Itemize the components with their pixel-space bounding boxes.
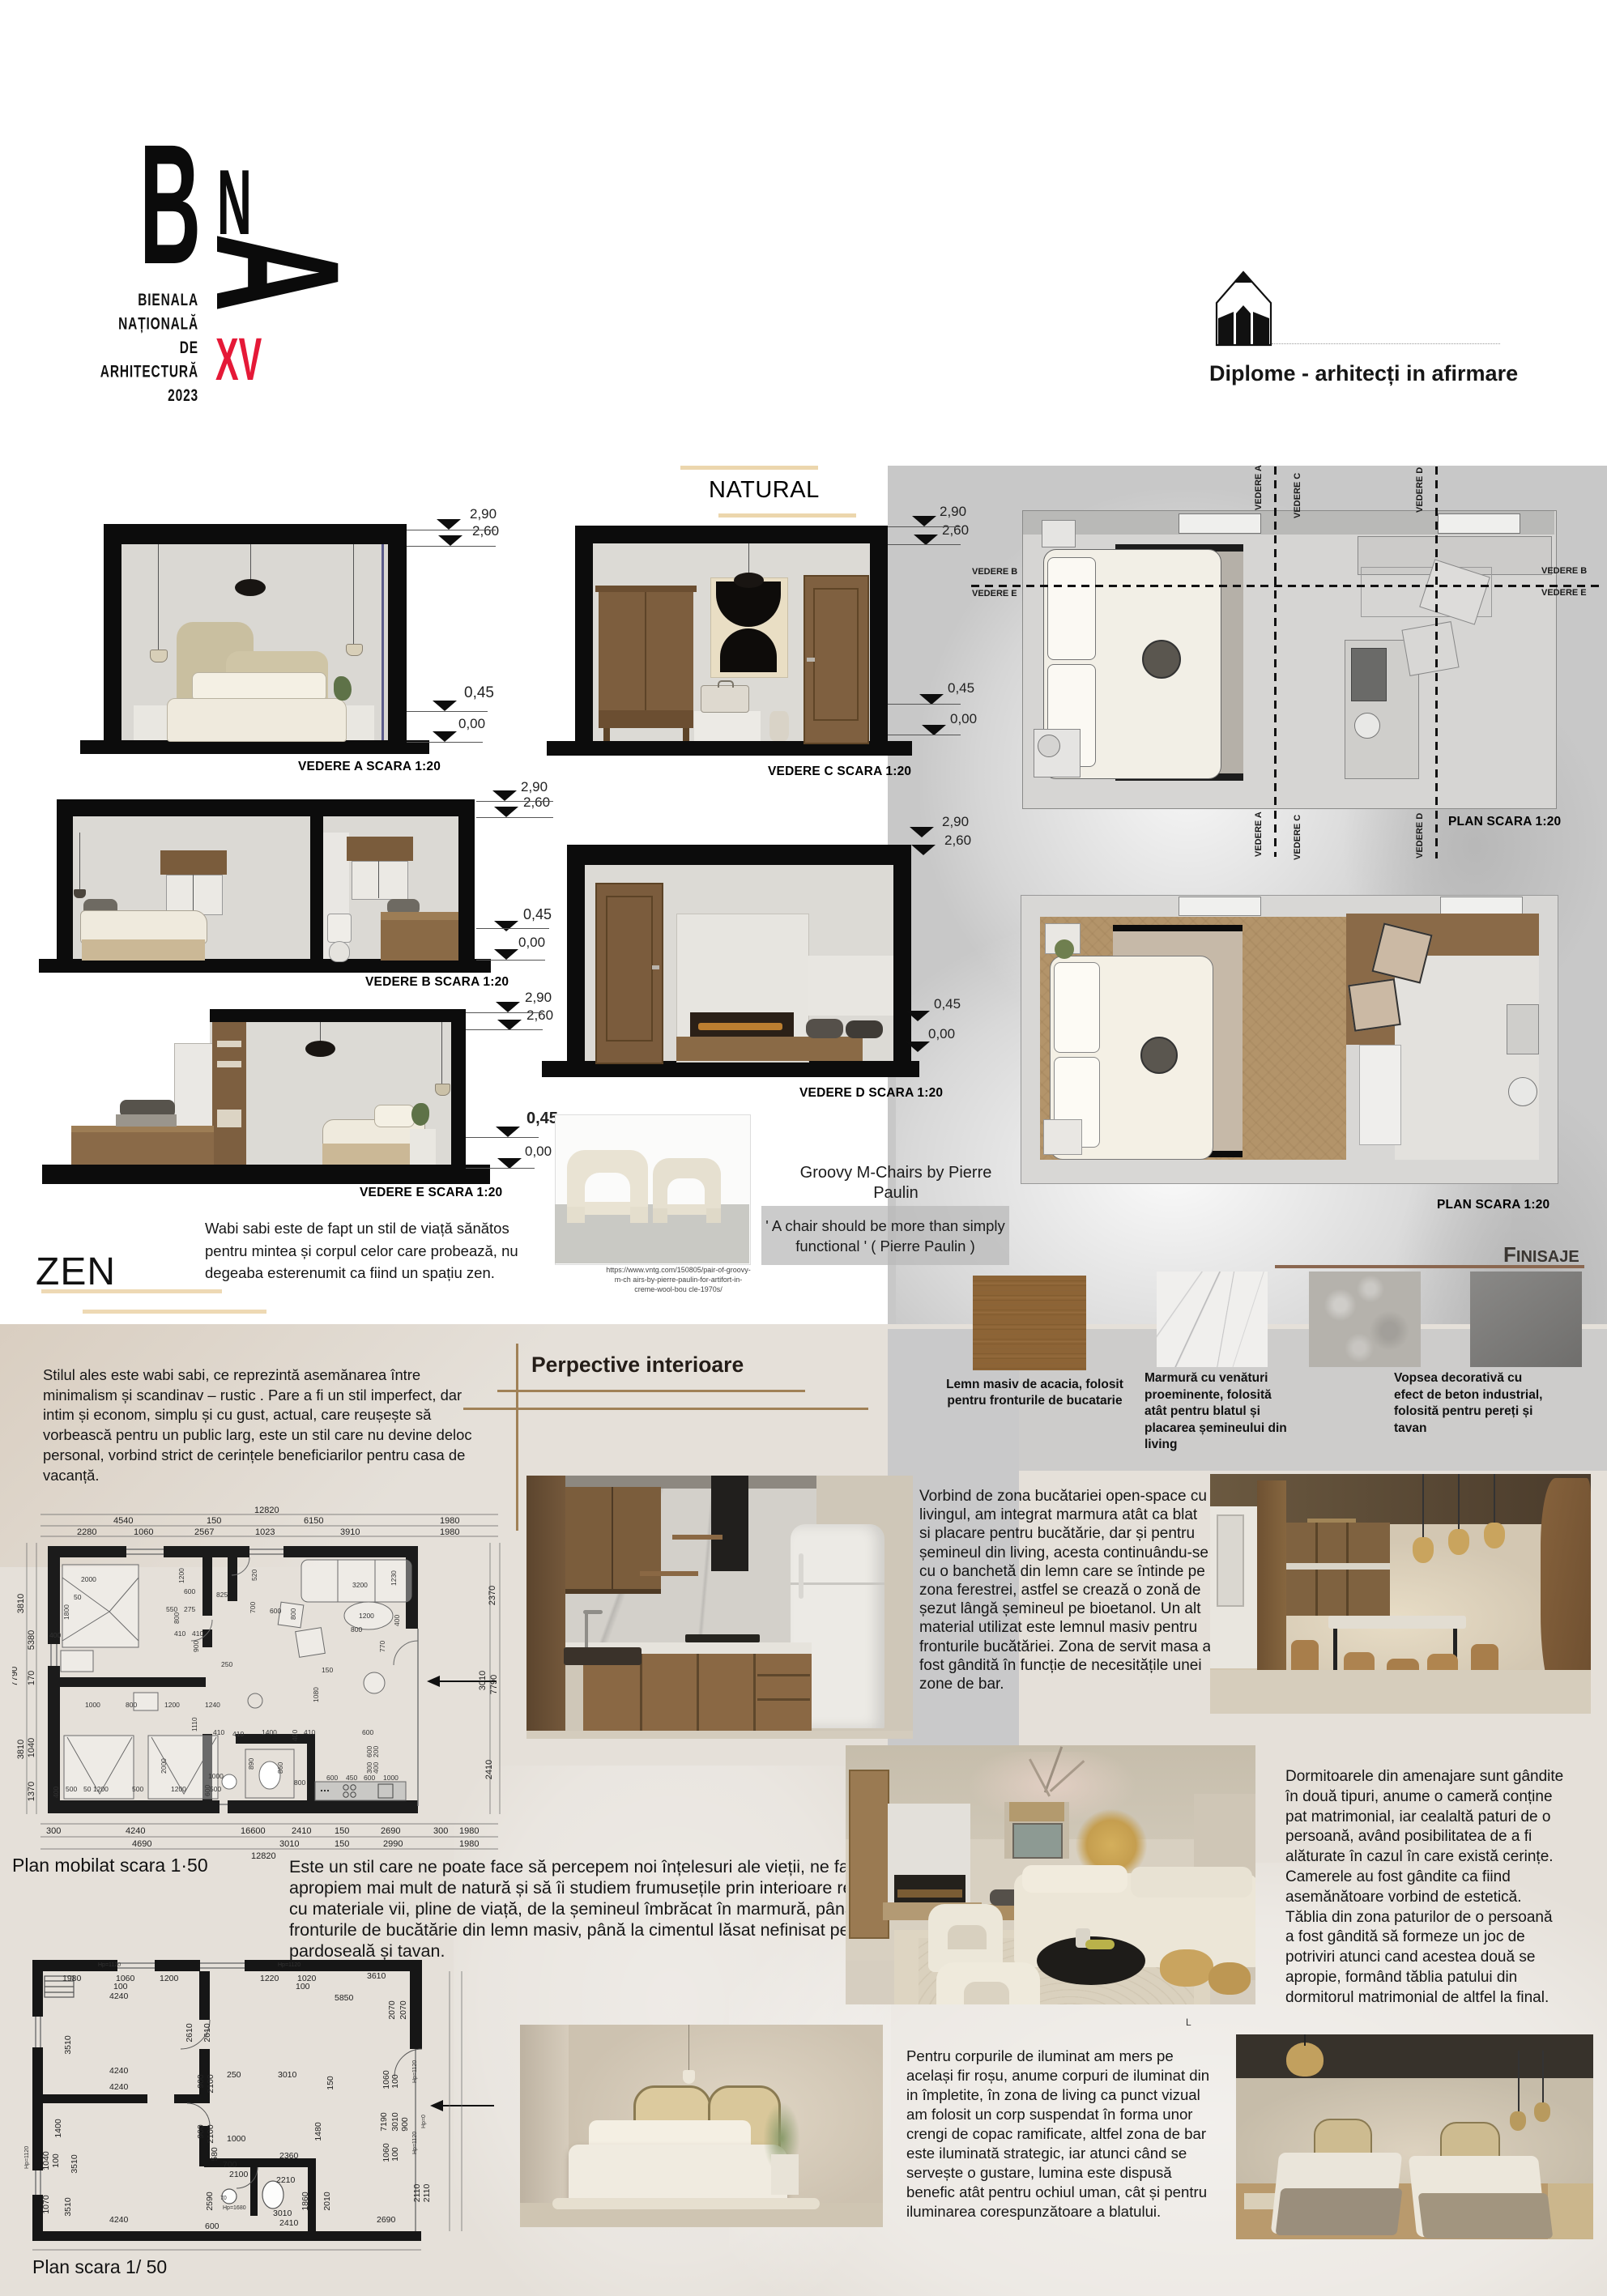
svg-text:3510: 3510 [63,2197,73,2217]
svg-text:2690: 2690 [381,1826,400,1836]
svg-text:600: 600 [326,1774,338,1782]
svg-text:1040: 1040 [41,2151,51,2170]
svg-text:1400: 1400 [53,2119,63,2138]
svg-text:12820: 12820 [254,1506,279,1515]
svg-text:2410: 2410 [279,2218,299,2228]
svg-text:2110: 2110 [412,2184,422,2203]
svg-text:1200: 1200 [160,1974,179,1983]
svg-text:1240: 1240 [205,1701,220,1709]
svg-text:XV: XV [215,326,262,393]
svg-text:2110: 2110 [422,2184,432,2203]
svg-text:5850: 5850 [335,1993,354,2003]
svg-text:2370: 2370 [488,1586,497,1605]
svg-text:1800: 1800 [62,1604,70,1620]
svg-text:800: 800 [294,1778,305,1787]
svg-text:NAȚIONALĂ: NAȚIONALĂ [118,313,198,333]
svg-text:2567: 2567 [194,1527,214,1537]
svg-text:1200: 1200 [171,1785,186,1793]
svg-text:410: 410 [174,1629,185,1638]
svg-text:2070: 2070 [399,2000,408,2020]
svg-text:2000: 2000 [160,1758,168,1774]
svg-text:410: 410 [304,1728,315,1736]
svg-text:600: 600 [184,1587,195,1595]
svg-text:3810: 3810 [16,1740,26,1759]
svg-text:250: 250 [221,1660,232,1668]
svg-text:2990: 2990 [383,1839,403,1849]
svg-text:250: 250 [227,2070,241,2080]
svg-text:550: 550 [166,1605,177,1613]
svg-text:4240: 4240 [109,1991,129,2001]
svg-text:Hp=1120: Hp=1120 [278,1962,301,1968]
svg-text:770: 770 [378,1641,386,1652]
svg-text:400: 400 [291,1730,299,1741]
svg-text:520: 520 [250,1570,258,1581]
svg-text:2590: 2590 [205,2192,215,2211]
svg-text:16600: 16600 [241,1826,266,1836]
svg-text:100: 100 [51,2153,61,2168]
svg-text:400: 400 [52,1787,60,1798]
svg-text:2690: 2690 [377,2215,396,2225]
svg-text:580: 580 [210,2147,220,2162]
svg-text:2100: 2100 [206,2124,215,2144]
svg-text:900: 900 [400,2117,410,2132]
svg-text:890: 890 [247,1758,255,1770]
svg-text:50: 50 [83,1785,92,1793]
svg-text:800: 800 [351,1625,362,1634]
svg-text:500: 500 [66,1785,77,1793]
svg-text:4540: 4540 [113,1516,133,1526]
svg-text:1110: 1110 [190,1717,198,1732]
svg-text:1480: 1480 [313,2122,323,2141]
svg-text:410: 410 [213,1728,224,1736]
svg-text:1060: 1060 [134,1527,153,1537]
svg-text:450: 450 [346,1774,357,1782]
svg-text:600: 600 [364,1774,375,1782]
svg-text:7190: 7190 [379,2112,389,2132]
svg-text:1980: 1980 [62,1974,82,1983]
svg-text:3200: 3200 [352,1581,368,1589]
svg-text:800: 800 [289,1608,297,1620]
svg-text:1980: 1980 [440,1527,459,1537]
svg-text:3810: 3810 [16,1594,26,1613]
svg-text:410: 410 [192,1629,203,1638]
svg-text:150: 150 [326,2076,335,2090]
svg-text:3510: 3510 [70,2154,79,2174]
svg-text:700: 700 [223,2160,237,2170]
svg-text:3510: 3510 [63,2035,73,2055]
svg-text:860: 860 [276,1762,284,1774]
svg-text:7790: 7790 [489,1675,499,1694]
svg-text:1980: 1980 [459,1839,479,1849]
svg-text:410: 410 [232,1730,244,1738]
svg-text:150: 150 [207,1516,221,1526]
svg-text:70: 70 [220,2196,227,2201]
svg-text:4240: 4240 [109,2066,129,2076]
svg-text:2070: 2070 [387,2000,397,2020]
svg-text:1980: 1980 [459,1826,479,1836]
svg-text:1070: 1070 [41,2195,51,2214]
svg-text:1000: 1000 [383,1774,399,1782]
svg-text:Hp=1120: Hp=1120 [412,2060,418,2083]
svg-text:200: 200 [372,1746,380,1757]
svg-text:1220: 1220 [260,1974,279,1983]
svg-text:400: 400 [49,1631,61,1639]
svg-text:2410: 2410 [484,1760,494,1779]
svg-text:150: 150 [322,1666,333,1674]
svg-text:2410: 2410 [292,1826,311,1836]
svg-text:2010: 2010 [322,2192,332,2211]
svg-text:600: 600 [270,1607,281,1615]
svg-text:150: 150 [335,1826,349,1836]
svg-text:1200: 1200 [164,1701,180,1709]
svg-text:500: 500 [210,1785,221,1793]
svg-text:2610: 2610 [202,2023,212,2043]
svg-text:4240: 4240 [109,2082,129,2092]
svg-text:1200: 1200 [93,1785,109,1793]
svg-text:DE: DE [180,337,198,356]
svg-text:12820: 12820 [251,1851,276,1861]
svg-text:1200: 1200 [177,1568,185,1583]
svg-text:1370: 1370 [27,1782,36,1801]
svg-text:Hp=1120: Hp=1120 [98,1962,121,1968]
svg-text:2100: 2100 [229,2170,249,2179]
svg-text:1230: 1230 [390,1570,398,1586]
svg-text:3010: 3010 [279,1839,299,1849]
svg-text:900: 900 [192,1641,200,1652]
svg-text:A: A [179,233,375,312]
svg-text:1000: 1000 [227,2134,246,2144]
svg-text:7790: 7790 [12,1667,19,1686]
svg-text:3010: 3010 [478,1671,488,1690]
svg-text:1400: 1400 [262,1728,277,1736]
svg-text:Hp=1680: Hp=1680 [223,2205,246,2211]
svg-text:Hp=1120: Hp=1120 [24,2146,30,2169]
svg-text:4240: 4240 [109,2215,129,2225]
svg-text:1040: 1040 [27,1738,36,1757]
svg-text:1080: 1080 [312,1687,320,1702]
svg-text:4240: 4240 [126,1826,145,1836]
svg-text:3610: 3610 [367,1971,386,1981]
svg-text:700: 700 [249,1602,257,1613]
svg-text:400: 400 [372,1762,380,1774]
svg-text:5380: 5380 [27,1630,36,1650]
svg-text:600: 600 [362,1728,373,1736]
svg-text:800: 800 [173,1612,181,1624]
svg-text:800: 800 [126,1701,137,1709]
svg-text:300: 300 [433,1826,448,1836]
svg-text:2023: 2023 [168,385,198,404]
svg-text:1000: 1000 [85,1701,100,1709]
svg-text:2280: 2280 [77,1527,96,1537]
svg-text:3010: 3010 [278,2070,297,2080]
svg-text:1000: 1000 [208,1772,224,1780]
svg-text:2210: 2210 [276,2175,296,2185]
svg-text:2610: 2610 [185,2023,194,2043]
svg-text:Hp=0: Hp=0 [421,2115,427,2128]
svg-text:6150: 6150 [304,1516,323,1526]
svg-text:600: 600 [205,2221,220,2231]
svg-text:1200: 1200 [359,1612,374,1620]
svg-text:100: 100 [390,2147,400,2162]
svg-text:900: 900 [196,2074,206,2089]
svg-text:3010: 3010 [273,2209,292,2218]
svg-text:3010: 3010 [390,2112,400,2132]
svg-text:150: 150 [335,1839,349,1849]
svg-text:300: 300 [46,1826,61,1836]
svg-text:170: 170 [27,1671,36,1685]
svg-text:400: 400 [393,1615,401,1626]
svg-text:2100: 2100 [206,2074,215,2094]
svg-text:100: 100 [390,2074,400,2089]
svg-text:275: 275 [184,1605,195,1613]
svg-text:1023: 1023 [255,1527,275,1537]
svg-text:900: 900 [196,2124,206,2139]
svg-text:BIENALA: BIENALA [138,289,198,309]
svg-text:2000: 2000 [81,1575,96,1583]
svg-text:ARHITECTURĂ: ARHITECTURĂ [100,361,198,381]
svg-text:1980: 1980 [440,1516,459,1526]
svg-text:100: 100 [113,1982,128,1991]
svg-text:Hp=1120: Hp=1120 [412,2132,418,2154]
svg-text:4690: 4690 [132,1839,151,1849]
svg-text:3910: 3910 [340,1527,360,1537]
svg-text:2360: 2360 [279,2151,299,2161]
svg-text:825: 825 [216,1591,228,1599]
svg-text:500: 500 [132,1785,143,1793]
svg-text:50: 50 [74,1593,82,1601]
svg-text:1860: 1860 [301,2192,310,2211]
svg-text:100: 100 [296,1982,310,1991]
